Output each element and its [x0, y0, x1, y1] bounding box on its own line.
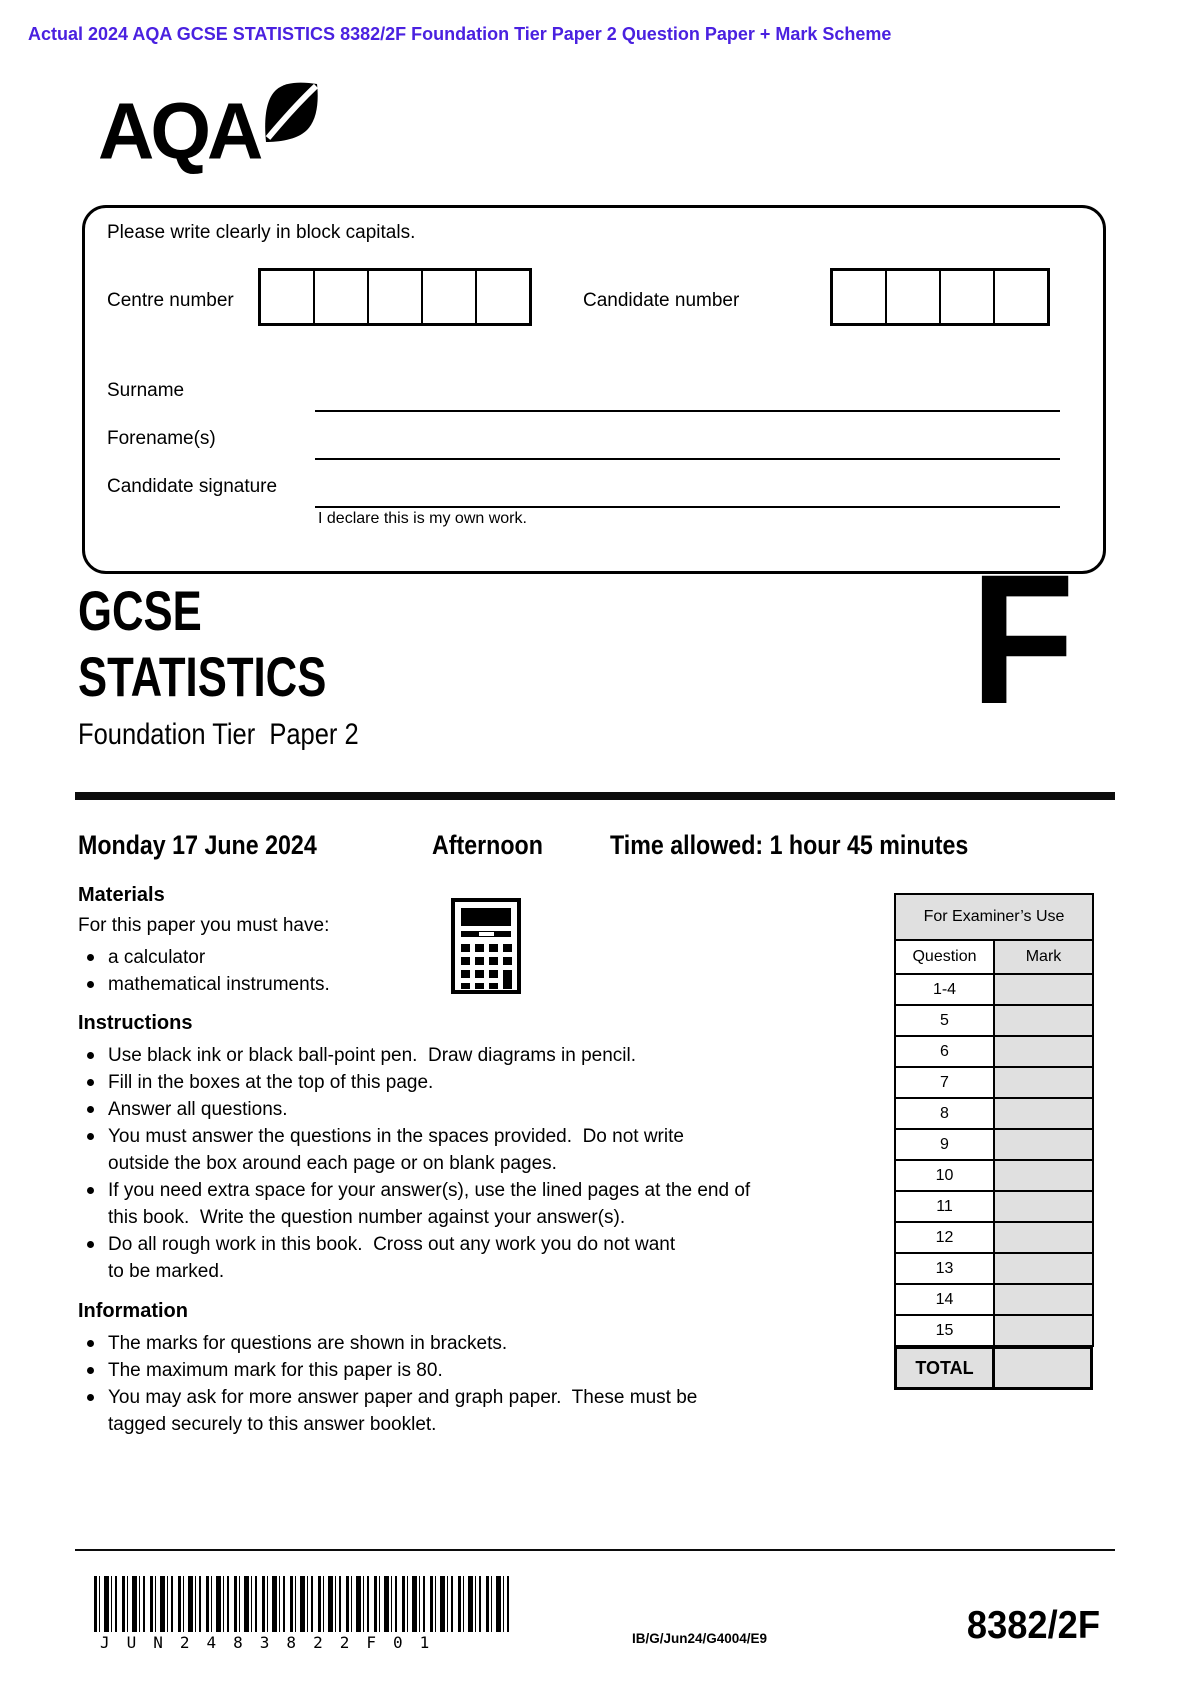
examiner-table-row: 8 [894, 1097, 1094, 1130]
question-number-cell: 11 [894, 1190, 995, 1223]
materials-item: a calculator [85, 944, 425, 971]
examiner-table-row: 11 [894, 1190, 1094, 1223]
total-label-cell: TOTAL [894, 1346, 995, 1390]
mark-column-header: Mark [993, 939, 1094, 975]
qualification-title: GCSE [78, 578, 202, 643]
question-number-cell: 10 [894, 1159, 995, 1192]
tier-paper-line: Foundation Tier Paper 2 [78, 718, 359, 752]
examiner-table-row: 6 [894, 1035, 1094, 1068]
examiner-table-row: 9 [894, 1128, 1094, 1161]
bullet-icon [87, 954, 94, 961]
materials-intro: For this paper you must have: [78, 912, 329, 939]
materials-heading: Materials [78, 884, 165, 907]
forenames-label: Forename(s) [107, 428, 216, 450]
information-heading: Information [78, 1300, 188, 1323]
candidate-number-input[interactable] [830, 268, 1050, 326]
bullet-icon [87, 1367, 94, 1374]
examiner-table-body: 1-4 5 6 7 8 9 10 11 [894, 973, 1094, 1347]
question-number-cell: 8 [894, 1097, 995, 1130]
aqa-logo: AQA [98, 85, 259, 178]
bullet-icon [87, 1052, 94, 1059]
examiner-use-table: For Examiner’s Use Question Mark 1-4 5 6… [894, 893, 1094, 1390]
candidate-number-label: Candidate number [583, 290, 739, 312]
examiner-table-row: 1-4 [894, 973, 1094, 1006]
candidate-number-cell[interactable] [939, 271, 993, 323]
exam-date: Monday 17 June 2024 [78, 830, 317, 861]
question-number-cell: 15 [894, 1314, 995, 1347]
instructions-heading: Instructions [78, 1012, 192, 1035]
surname-label: Surname [107, 380, 184, 402]
examiner-table-row: 13 [894, 1252, 1094, 1285]
examiner-table-row: 12 [894, 1221, 1094, 1254]
question-column-header: Question [894, 939, 995, 975]
candidate-number-cell[interactable] [833, 271, 885, 323]
subject-title: STATISTICS [78, 644, 326, 709]
candidate-number-cell[interactable] [993, 271, 1047, 323]
mark-entry-cell[interactable] [993, 1097, 1094, 1130]
footer-divider-rule [75, 1549, 1115, 1551]
question-number-cell: 13 [894, 1252, 995, 1285]
mark-entry-cell[interactable] [993, 1190, 1094, 1223]
instructions-item: You must answer the questions in the spa… [85, 1123, 865, 1177]
mark-entry-cell[interactable] [993, 1035, 1094, 1068]
forenames-field[interactable] [315, 458, 1060, 460]
bullet-icon [87, 1133, 94, 1140]
candidate-signature-label: Candidate signature [107, 476, 277, 498]
candidate-details-box [82, 205, 1106, 574]
instructions-list: Use black ink or black ball-point pen. D… [85, 1042, 865, 1285]
question-number-cell: 9 [894, 1128, 995, 1161]
exam-session: Afternoon [432, 830, 543, 861]
centre-number-cell[interactable] [421, 271, 475, 323]
examiner-table-title: For Examiner’s Use [894, 893, 1094, 941]
instructions-item: Answer all questions. [85, 1096, 865, 1123]
mark-entry-cell[interactable] [993, 1314, 1094, 1347]
mark-entry-cell[interactable] [993, 1283, 1094, 1316]
examiner-table-row: 10 [894, 1159, 1094, 1192]
surname-field[interactable] [315, 410, 1060, 412]
barcode-text: JUN2483822F01 [100, 1633, 446, 1652]
mark-entry-cell[interactable] [993, 1004, 1094, 1037]
calculator-icon [451, 898, 521, 999]
centre-number-cell[interactable] [367, 271, 421, 323]
question-number-cell: 5 [894, 1004, 995, 1037]
bullet-icon [87, 1187, 94, 1194]
exam-paper-front-page: Actual 2024 AQA GCSE STATISTICS 8382/2F … [0, 0, 1191, 1684]
centre-number-input[interactable] [258, 268, 532, 326]
bullet-icon [87, 1340, 94, 1347]
title-divider-rule [75, 792, 1115, 800]
centre-number-cell[interactable] [261, 271, 313, 323]
information-item: You may ask for more answer paper and gr… [85, 1384, 865, 1438]
footer-reference: IB/G/Jun24/G4004/E9 [632, 1631, 767, 1646]
mark-entry-cell[interactable] [993, 1159, 1094, 1192]
instructions-item: Fill in the boxes at the top of this pag… [85, 1069, 865, 1096]
materials-item: mathematical instruments. [85, 971, 425, 998]
mark-entry-cell[interactable] [993, 1221, 1094, 1254]
question-number-cell: 14 [894, 1283, 995, 1316]
examiner-table-total-row: TOTAL [894, 1346, 1094, 1390]
question-number-cell: 7 [894, 1066, 995, 1099]
examiner-table-row: 15 [894, 1314, 1094, 1347]
information-item: The maximum mark for this paper is 80. [85, 1357, 865, 1384]
information-list: The marks for questions are shown in bra… [85, 1330, 865, 1438]
question-number-cell: 12 [894, 1221, 995, 1254]
bullet-icon [87, 1241, 94, 1248]
declaration-text: I declare this is my own work. [318, 510, 527, 528]
instructions-item: Use black ink or black ball-point pen. D… [85, 1042, 865, 1069]
paper-code: 8382/2F [914, 1604, 1100, 1648]
instructions-item: If you need extra space for your answer(… [85, 1177, 865, 1231]
promo-banner-link[interactable]: Actual 2024 AQA GCSE STATISTICS 8382/2F … [28, 24, 891, 45]
mark-entry-cell[interactable] [993, 973, 1094, 1006]
mark-entry-cell[interactable] [993, 1128, 1094, 1161]
examiner-table-header-row: Question Mark [894, 939, 1094, 975]
bullet-icon [87, 981, 94, 988]
centre-number-cell[interactable] [313, 271, 367, 323]
question-number-cell: 1-4 [894, 973, 995, 1006]
bullet-icon [87, 1394, 94, 1401]
mark-entry-cell[interactable] [993, 1066, 1094, 1099]
examiner-table-row: 5 [894, 1004, 1094, 1037]
total-mark-cell[interactable] [992, 1346, 1093, 1390]
bullet-icon [87, 1106, 94, 1113]
examiner-table-row: 14 [894, 1283, 1094, 1316]
aqa-leaf-icon [263, 82, 319, 142]
block-capitals-note: Please write clearly in block capitals. [107, 222, 415, 244]
materials-list: a calculator mathematical instruments. [85, 944, 425, 998]
time-allowed: Time allowed: 1 hour 45 minutes [610, 830, 968, 861]
centre-number-cell[interactable] [475, 271, 529, 323]
information-item: The marks for questions are shown in bra… [85, 1330, 865, 1357]
bullet-icon [87, 1079, 94, 1086]
mark-entry-cell[interactable] [993, 1252, 1094, 1285]
candidate-number-cell[interactable] [885, 271, 939, 323]
barcode [94, 1576, 512, 1632]
tier-letter: F [942, 548, 1103, 733]
examiner-table-row: 7 [894, 1066, 1094, 1099]
instructions-item: Do all rough work in this book. Cross ou… [85, 1231, 865, 1285]
centre-number-label: Centre number [107, 290, 234, 312]
question-number-cell: 6 [894, 1035, 995, 1068]
candidate-signature-field[interactable] [315, 506, 1060, 508]
